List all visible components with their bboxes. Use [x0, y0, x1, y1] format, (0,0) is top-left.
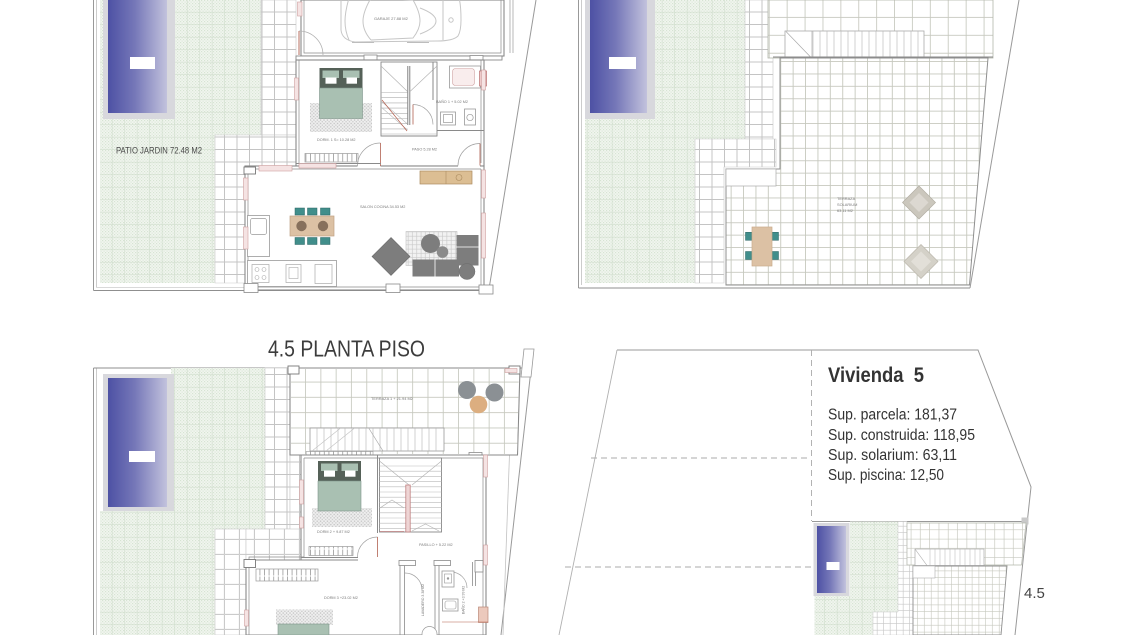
svg-text:Vivienda 5: Vivienda 5 — [828, 363, 924, 387]
svg-text:TERRAZA: TERRAZA — [837, 196, 856, 201]
svg-text:SALON COCINA 34.53 M2: SALON COCINA 34.53 M2 — [360, 205, 405, 209]
svg-text:Sup. solarium: 63,11: Sup. solarium: 63,11 — [828, 447, 957, 464]
svg-text:BAÑO 2 +3.99 M2: BAÑO 2 +3.99 M2 — [461, 586, 466, 615]
svg-text:BAÑO 1 + 5.02 M2: BAÑO 1 + 5.02 M2 — [436, 99, 468, 104]
svg-text:63.11 M2: 63.11 M2 — [837, 208, 853, 213]
svg-text:PASO 5.28 M2: PASO 5.28 M2 — [412, 148, 437, 152]
svg-text:DORM 2 + 9.87 M2: DORM 2 + 9.87 M2 — [317, 530, 350, 534]
svg-text:4.5 PLANTA PISO: 4.5 PLANTA PISO — [268, 336, 425, 362]
svg-text:DORM. 1 S= 10.28 M2: DORM. 1 S= 10.28 M2 — [317, 138, 356, 142]
svg-text:SOLARIUM: SOLARIUM — [837, 202, 857, 207]
svg-text:LAVADERO 3.38 M2: LAVADERO 3.38 M2 — [421, 584, 425, 616]
svg-text:Sup. piscina: 12,50: Sup. piscina: 12,50 — [828, 467, 944, 484]
svg-text:PASILLO + 5.22 M2: PASILLO + 5.22 M2 — [419, 543, 453, 547]
svg-text:Sup. parcela: 181,37: Sup. parcela: 181,37 — [828, 407, 957, 424]
svg-text:Sup. construida: 118,95: Sup. construida: 118,95 — [828, 427, 975, 444]
svg-text:4.5: 4.5 — [1024, 585, 1045, 602]
svg-text:PATIO JARDIN 72.48 M2: PATIO JARDIN 72.48 M2 — [116, 146, 202, 157]
svg-text:TERRAZA 1 + 21.94 M2: TERRAZA 1 + 21.94 M2 — [371, 396, 413, 401]
svg-text:GARAJE 27.88 M2: GARAJE 27.88 M2 — [374, 16, 409, 21]
svg-text:DORM 3 +23.02 M2: DORM 3 +23.02 M2 — [324, 596, 358, 600]
